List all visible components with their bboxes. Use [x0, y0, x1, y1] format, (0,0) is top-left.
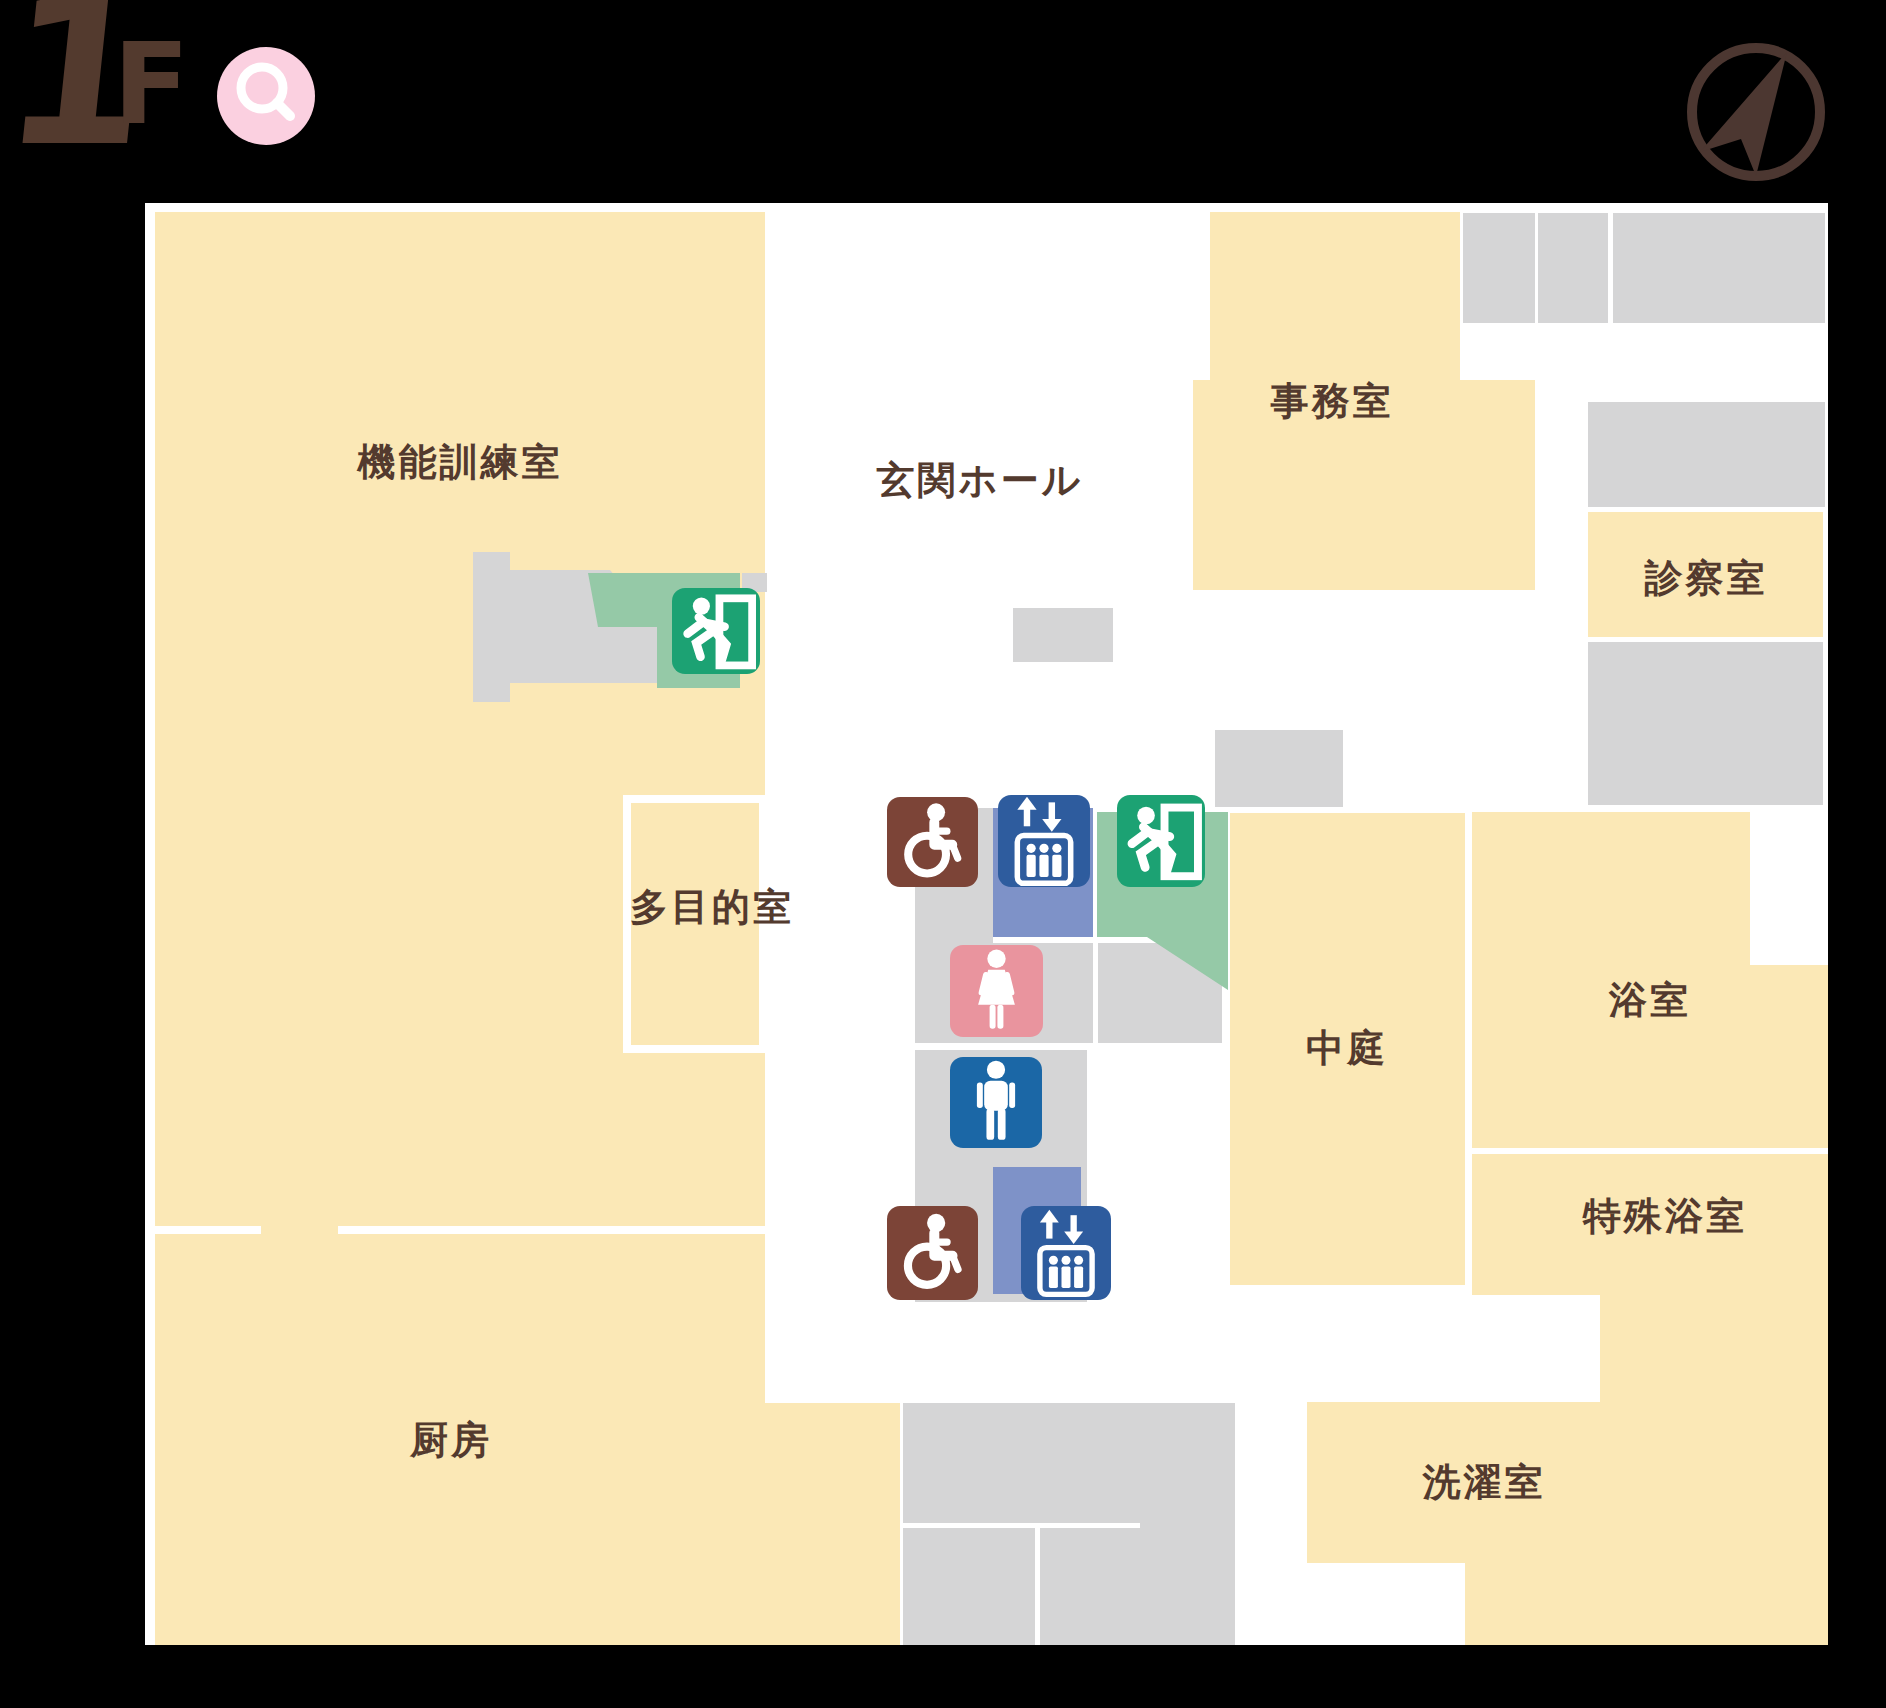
compass-north-icon	[1685, 40, 1828, 183]
elevator-icon	[1021, 1206, 1111, 1300]
utility-room-right-lower	[1588, 642, 1823, 805]
room-special-bath-area-south	[1600, 1295, 1828, 1402]
mens-toilet-icon	[950, 1057, 1042, 1148]
room-label-office: 事務室	[1271, 382, 1394, 420]
room-laundry-area-south	[1465, 1563, 1828, 1645]
room-label-special-bath: 特殊浴室	[1583, 1197, 1747, 1235]
room-label-courtyard: 中庭	[1306, 1029, 1388, 1067]
room-label-bath: 浴室	[1609, 981, 1691, 1019]
room-label-multipurpose: 多目的室	[630, 888, 794, 926]
room-laundry-area	[1307, 1402, 1828, 1563]
utility-room-right-upper	[1588, 402, 1825, 507]
search-zoom-button[interactable]	[217, 47, 315, 145]
room-label-kitchen: 厨房	[410, 1421, 492, 1459]
room-label-training: 機能訓練室	[358, 443, 563, 481]
wall-line-bottom-v	[1035, 1528, 1040, 1645]
room-label-entrance-hall: 玄関ホール	[877, 461, 1084, 499]
utility-room-top-1	[1463, 213, 1535, 323]
floor-map-screen: 1 F	[0, 0, 1886, 1708]
utility-block-courtyard-north	[1215, 730, 1343, 807]
room-label-examination: 診察室	[1645, 559, 1768, 597]
magnifier-icon	[217, 47, 315, 145]
utility-room-top-2	[1538, 213, 1608, 323]
emergency-exit-icon	[1117, 795, 1205, 887]
room-office-area-upper	[1210, 212, 1460, 380]
room-label-laundry: 洗濯室	[1423, 1463, 1546, 1501]
utility-room-top-3	[1613, 213, 1825, 323]
room-bath-area-east	[1750, 965, 1828, 1148]
womens-toilet-icon	[950, 945, 1043, 1037]
utility-block-hall	[1013, 608, 1113, 662]
elevator-icon	[998, 795, 1090, 887]
floor-suffix: F	[113, 28, 190, 140]
emergency-exit-icon	[672, 588, 760, 674]
wheelchair-icon	[887, 1206, 978, 1300]
room-kitchen-extension	[765, 1403, 900, 1645]
wheelchair-icon	[887, 797, 978, 887]
kitchen-wall-line-east	[338, 1226, 765, 1234]
wall-line-bottom-h	[903, 1523, 1140, 1528]
kitchen-wall-line-west	[145, 1226, 261, 1234]
